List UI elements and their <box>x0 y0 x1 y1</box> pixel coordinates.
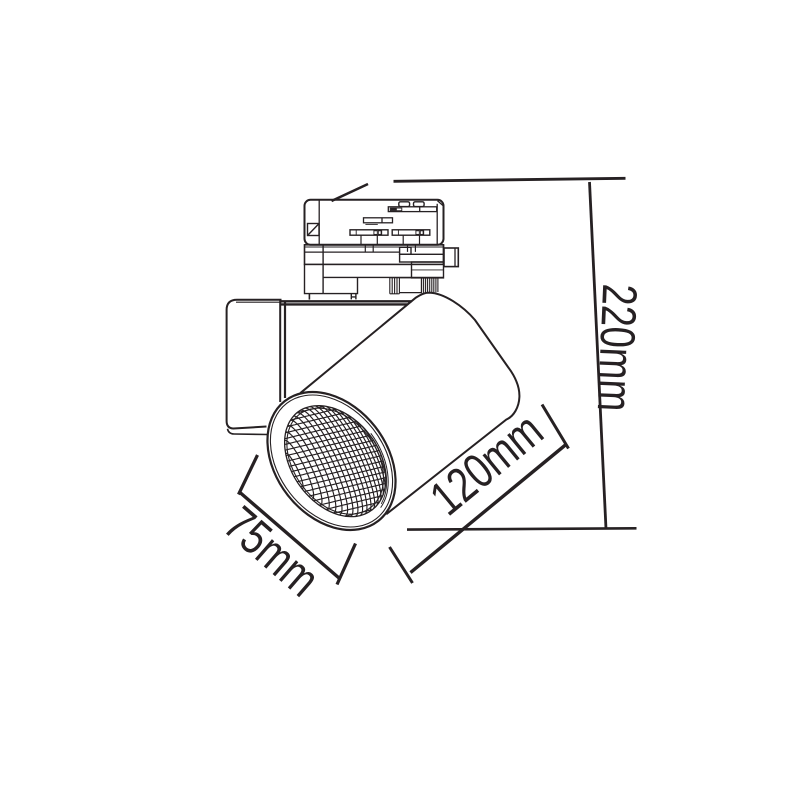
svg-text:220mm: 220mm <box>587 283 647 413</box>
